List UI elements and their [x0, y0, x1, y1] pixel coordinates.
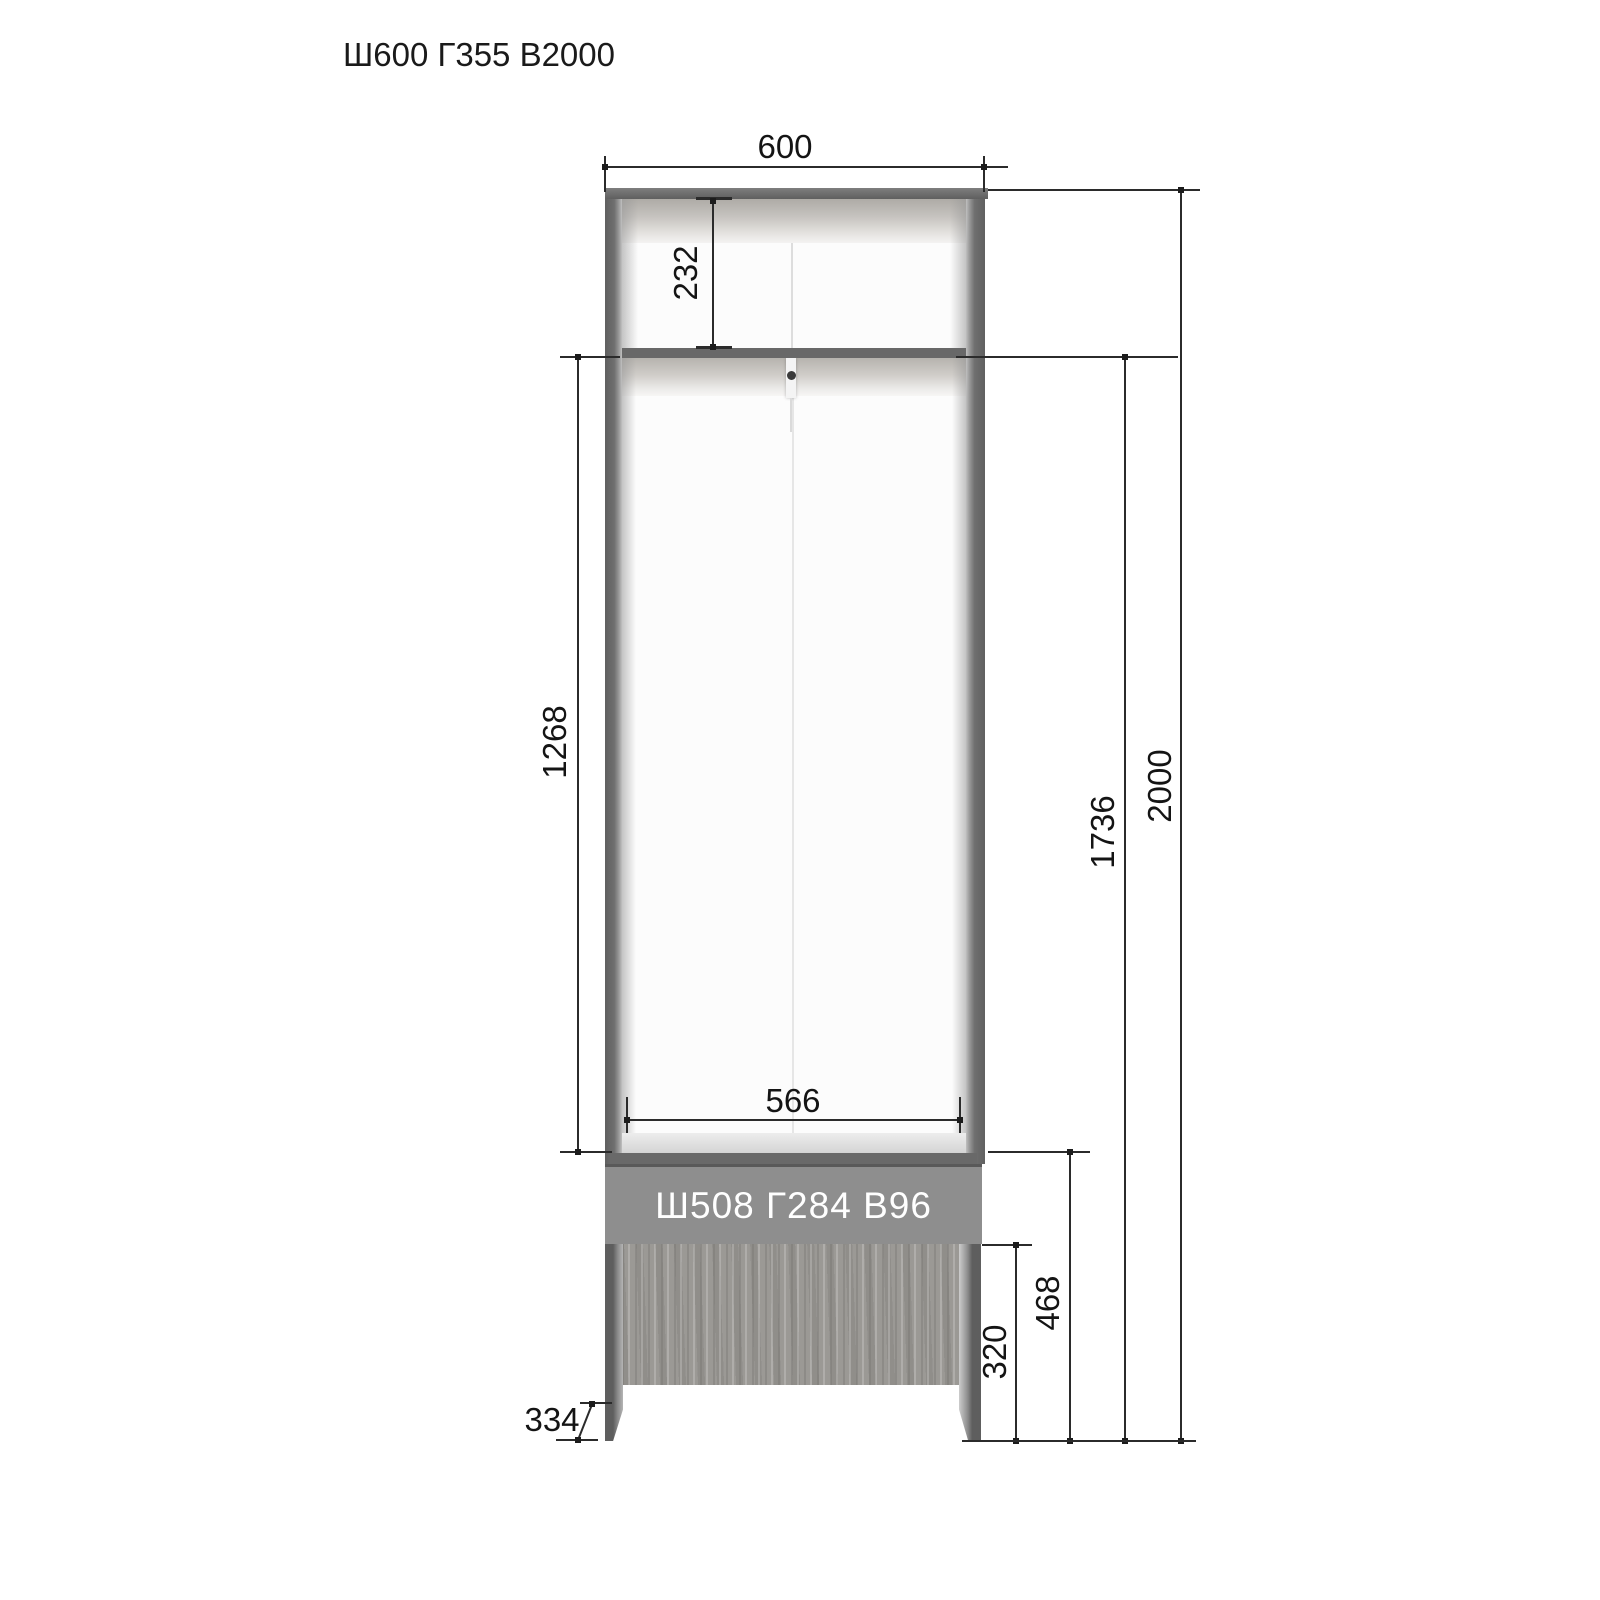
dim-232-tick	[710, 198, 716, 204]
dim-1736-label: 1736	[1085, 762, 1121, 902]
drawer-front-panel: Ш508 Г284 В96	[605, 1164, 982, 1244]
dim-600-ext-left	[604, 156, 606, 192]
shelf-panel	[622, 348, 966, 358]
dim-320-ext-top	[982, 1244, 1032, 1246]
dim-566-tick	[957, 1117, 963, 1123]
dim-1736-ext-top	[956, 356, 1178, 358]
compartment-bottom-panel	[610, 1153, 977, 1164]
dim-2000-line	[1180, 190, 1182, 1442]
dim-566-label: 566	[723, 1083, 863, 1119]
dim-334-label: 334	[492, 1402, 612, 1438]
drawer-size-label: Ш508 Г284 В96	[655, 1185, 932, 1227]
dim-468-label: 468	[1030, 1233, 1066, 1373]
main-compartment-floor-shading	[622, 1133, 966, 1153]
dim-2000-label: 2000	[1142, 716, 1178, 856]
dim-232-tick	[710, 344, 716, 350]
furniture-drawing-canvas: Ш600 Г355 В2000 Ш508 Г284 В96 600	[0, 0, 1600, 1600]
dim-1268-label: 1268	[537, 672, 573, 812]
dim-1268-tick	[575, 354, 581, 360]
cabinet-top-panel	[605, 188, 988, 199]
dim-468-line	[1069, 1152, 1071, 1442]
top-compartment-left-shading	[622, 199, 638, 348]
dim-600-tick	[981, 164, 987, 170]
dim-232-label: 232	[668, 203, 704, 343]
dim-1736-tick	[1122, 354, 1128, 360]
base-wood-panel	[622, 1244, 962, 1385]
floor-line-right	[962, 1440, 1196, 1442]
cabinet-right-side-panel	[966, 199, 985, 1164]
dim-232-line	[712, 199, 714, 348]
dim-566-ext-left	[626, 1097, 628, 1133]
dim-600-line	[605, 166, 1008, 168]
dim-468-tick	[1067, 1149, 1073, 1155]
cabinet-left-side-panel	[605, 199, 622, 1164]
dim-320-line	[1015, 1245, 1017, 1442]
dim-600-label: 600	[715, 129, 855, 165]
dim-566-ext-right	[959, 1097, 961, 1133]
main-compartment-left-shading	[622, 358, 636, 1153]
dim-566-tick	[624, 1117, 630, 1123]
dim-1268-ext-top	[560, 356, 620, 358]
drawing-title: Ш600 Г355 В2000	[343, 36, 615, 74]
dim-2000-ext-top	[988, 189, 1200, 191]
top-compartment-back-seam	[791, 243, 793, 348]
dim-2000-tick	[1178, 187, 1184, 193]
main-compartment-back-seam	[792, 396, 794, 1136]
dim-600-tick	[602, 164, 608, 170]
dim-320-tick	[1013, 1242, 1019, 1248]
dim-1268-ext-bottom	[560, 1151, 612, 1153]
dim-1268-line	[577, 357, 579, 1152]
top-compartment-right-shading	[950, 199, 966, 348]
dim-468-ext-top	[988, 1151, 1090, 1153]
hanging-rod-bracket-shadow	[790, 398, 792, 432]
dim-1268-tick	[575, 1149, 581, 1155]
main-compartment-interior	[622, 358, 966, 1153]
hanging-rod-end-icon	[787, 371, 796, 380]
dim-320-label: 320	[977, 1282, 1013, 1422]
dim-1736-line	[1124, 357, 1126, 1442]
main-compartment-right-shading	[952, 358, 966, 1153]
dim-600-ext-right	[983, 156, 985, 192]
